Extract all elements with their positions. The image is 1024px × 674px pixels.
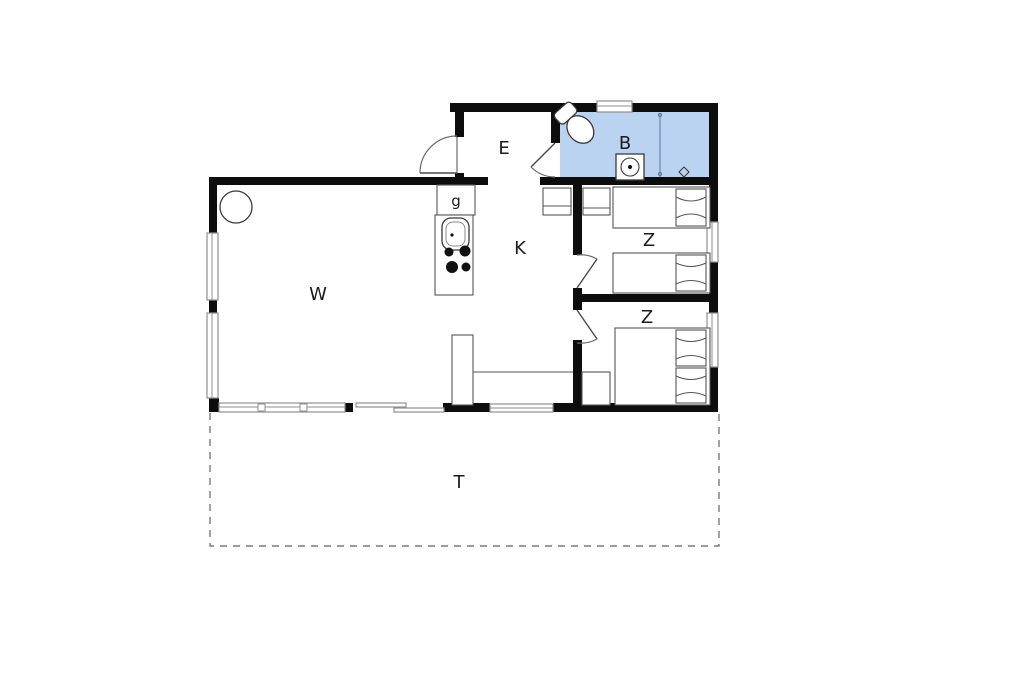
bed-icon (615, 328, 710, 405)
room-label-bathroom: B (619, 133, 631, 154)
window-living-left-1 (207, 233, 218, 300)
bed-icon (613, 187, 710, 228)
bedroom2-door (577, 310, 597, 343)
floor-plan: W K E B g Z Z T (0, 0, 1024, 674)
sink-icon (442, 218, 469, 250)
room-label-kitchen: K (514, 238, 527, 259)
room-labels: W K E B g Z Z T (309, 133, 655, 493)
wall-bedroom-1 (573, 185, 582, 255)
window-living-left-2 (207, 313, 218, 398)
room-label-utility: g (451, 192, 461, 210)
wall-entry-left-top (455, 103, 464, 137)
window-bath-top (597, 101, 632, 112)
room-label-bedroom-2: Z (641, 307, 653, 328)
entrance-door (420, 136, 457, 173)
wall-bedroom-2 (573, 340, 582, 412)
wall-left-1 (209, 177, 217, 233)
wardrobe-icon (583, 188, 610, 215)
wall-living-top (209, 177, 488, 185)
wall-left-2 (209, 300, 217, 313)
sliding-door (356, 403, 444, 412)
window-hall-bottom (490, 404, 553, 412)
wall-bottom-post (345, 403, 353, 412)
room-label-entrance: E (498, 138, 509, 159)
floor-plan-canvas: W K E B g Z Z T (0, 0, 1024, 674)
room-label-bedroom-1: Z (643, 230, 655, 251)
bed-icon (613, 253, 710, 293)
room-label-terrace: T (453, 472, 466, 493)
wardrobe-icon (543, 188, 571, 215)
bathroom-door (531, 143, 555, 177)
terrace-outline (210, 413, 719, 546)
wood-stove-icon (220, 191, 252, 223)
wardrobe-icon (582, 372, 610, 405)
room-label-living-room: W (309, 284, 327, 305)
bedroom1-door (577, 255, 597, 288)
window-living-bottom-band (219, 403, 345, 412)
wall-bedroom-divider (573, 294, 718, 302)
hall-cabinet (452, 335, 473, 405)
shower-drain-icon (616, 154, 644, 180)
wall-top-right (632, 103, 718, 112)
wall-left-3 (209, 398, 219, 412)
